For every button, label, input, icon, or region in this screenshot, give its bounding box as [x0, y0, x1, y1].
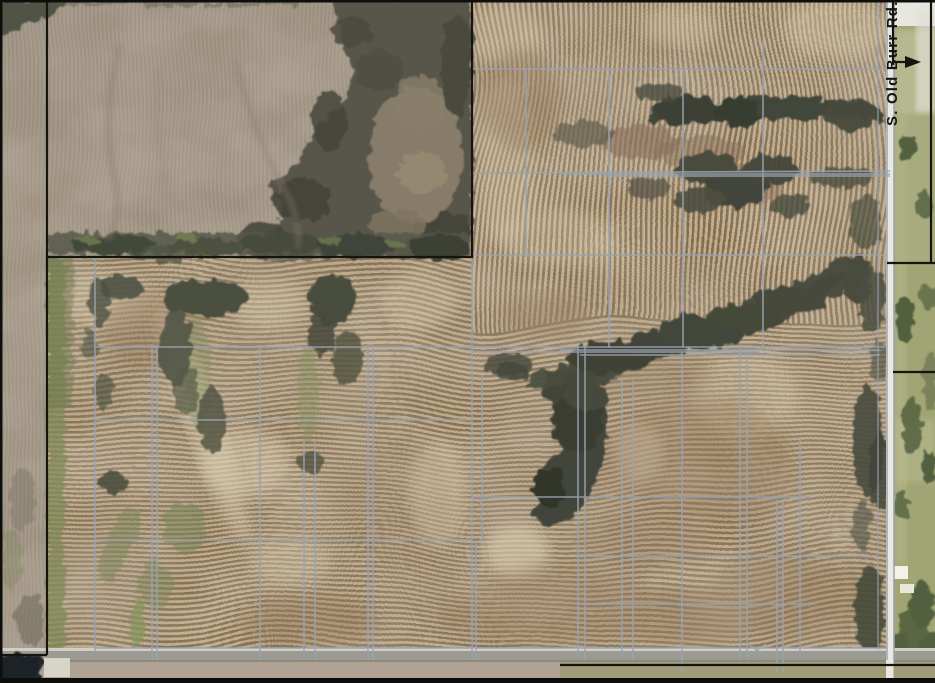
svg-text:S. Old Burr Rd.: S. Old Burr Rd. [884, 0, 901, 126]
